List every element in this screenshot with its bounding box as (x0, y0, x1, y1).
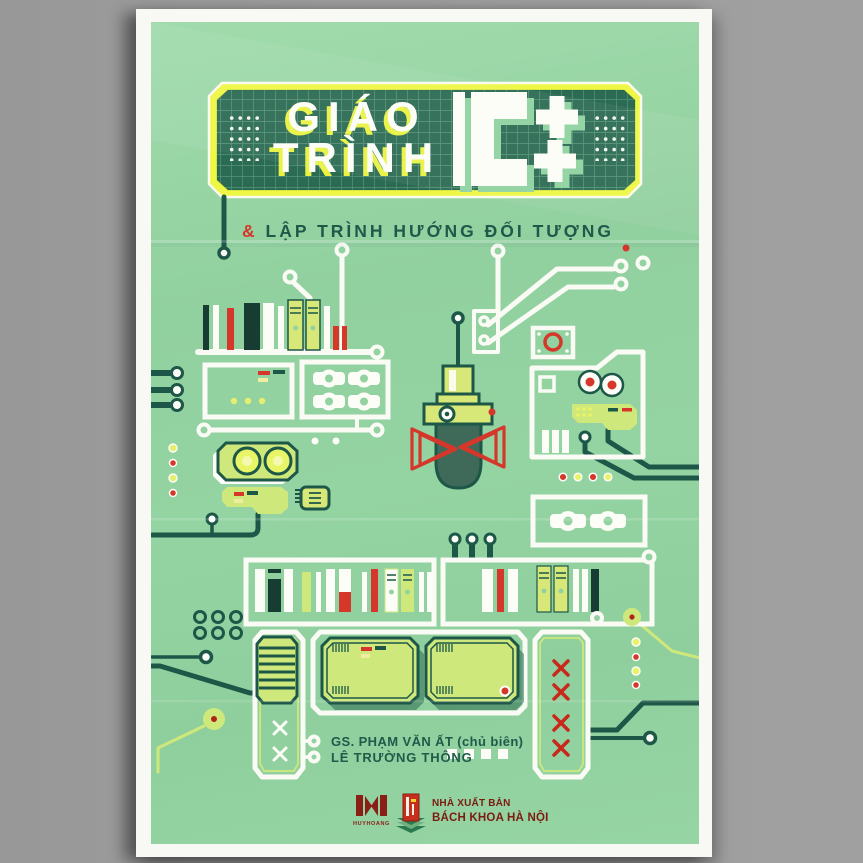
book: GIÁO TRÌNH GIÁO TRÌNH (136, 9, 712, 857)
publisher-logo-huyhoang: HUYHOANG (353, 795, 390, 827)
author-coauthor: LÊ TRƯỜNG THÔNG (331, 750, 472, 765)
subtitle: & LẬP TRÌNH HƯỚNG ĐỐI TƯỢNG (242, 220, 614, 241)
circuit-illustration (151, 197, 699, 777)
label-box-icon (205, 365, 292, 417)
x-column-icon (535, 632, 588, 777)
author-editor: GS. PHẠM VĂN ẤT (chủ biên) (331, 734, 523, 749)
nxb-line2: BÁCH KHOA HÀ NỘI (432, 811, 549, 824)
authors: GS. PHẠM VĂN ẤT (chủ biên) LÊ TRƯỜNG THÔ… (331, 734, 523, 765)
book-cover: GIÁO TRÌNH GIÁO TRÌNH (151, 22, 699, 844)
capacitor-icon (255, 632, 303, 777)
white-x-marks (274, 722, 286, 760)
nxb-line1: NHÀ XUẤT BẢN (432, 796, 511, 809)
paper-creases (151, 22, 699, 703)
subtitle-text: LẬP TRÌNH HƯỚNG ĐỐI TƯỢNG (258, 220, 614, 241)
via-grid-icon (195, 612, 242, 639)
spool-box-icon (302, 362, 388, 417)
spool-box-icon (533, 497, 645, 545)
publisher-logo-bachkhoa (396, 794, 426, 833)
publisher-name: NHÀ XUẤT BẢN BÁCH KHOA HÀ NỘI (432, 796, 549, 824)
huyhoang-label: HUYHOANG (353, 821, 390, 827)
gamepad-icon (572, 404, 637, 430)
chip-icon (295, 487, 329, 509)
red-x-marks (554, 661, 568, 755)
cover-art: GIÁO TRÌNH GIÁO TRÌNH (151, 22, 699, 844)
edge-pins-icon (151, 368, 183, 411)
led-dots-right (632, 638, 640, 689)
subtitle-ampersand: & (242, 221, 258, 241)
led-dots-left (169, 444, 177, 497)
publisher-row: HUYHOANG NHÀ XUẤT BẢN BÁCH KHOA HÀ NỘI (353, 794, 548, 833)
camera-icon (533, 328, 573, 357)
monitor-icon (532, 352, 643, 457)
led-dots-row (559, 473, 612, 481)
robot-head-icon (213, 443, 297, 484)
bookshelf-icon (203, 300, 347, 350)
